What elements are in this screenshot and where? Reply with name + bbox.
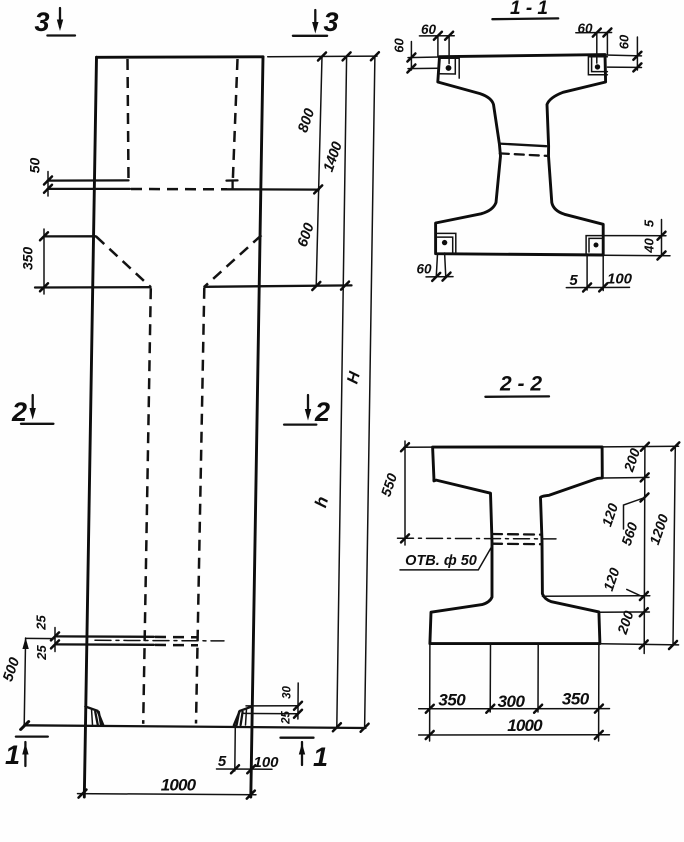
svg-text:560: 560 <box>618 520 641 547</box>
svg-text:60: 60 <box>577 21 593 36</box>
svg-text:25: 25 <box>34 645 49 661</box>
svg-text:1: 1 <box>313 742 328 772</box>
svg-text:2 - 2: 2 - 2 <box>499 373 542 396</box>
svg-text:100: 100 <box>607 271 633 288</box>
svg-text:200: 200 <box>620 446 643 474</box>
svg-text:300: 300 <box>498 692 526 711</box>
svg-text:25: 25 <box>34 615 49 631</box>
svg-text:2: 2 <box>314 397 330 427</box>
svg-text:1000: 1000 <box>507 716 543 735</box>
svg-text:3: 3 <box>34 7 49 37</box>
svg-text:H: H <box>344 370 364 386</box>
svg-text:800: 800 <box>295 107 318 135</box>
svg-text:1200: 1200 <box>646 512 671 547</box>
svg-text:60: 60 <box>392 38 407 53</box>
svg-text:2: 2 <box>11 397 27 427</box>
svg-text:3: 3 <box>323 7 338 37</box>
svg-text:5: 5 <box>218 753 227 770</box>
svg-text:60: 60 <box>416 262 432 277</box>
svg-text:1 - 1: 1 - 1 <box>510 0 548 19</box>
svg-text:ОТВ. ф 50: ОТВ. ф 50 <box>405 553 477 569</box>
svg-text:120: 120 <box>598 501 621 528</box>
svg-text:100: 100 <box>253 754 279 771</box>
svg-text:25: 25 <box>281 711 293 725</box>
svg-text:550: 550 <box>377 471 400 498</box>
svg-text:5: 5 <box>642 219 657 227</box>
svg-text:120: 120 <box>600 566 623 593</box>
svg-text:5: 5 <box>569 272 578 289</box>
svg-text:60: 60 <box>421 22 437 37</box>
svg-text:350: 350 <box>562 690 590 709</box>
svg-text:350: 350 <box>20 247 36 271</box>
svg-text:500: 500 <box>0 656 23 684</box>
svg-text:40: 40 <box>642 238 657 254</box>
svg-text:60: 60 <box>617 34 632 49</box>
svg-text:1: 1 <box>5 740 20 770</box>
svg-text:1000: 1000 <box>161 776 197 795</box>
svg-text:600: 600 <box>295 221 318 249</box>
svg-text:50: 50 <box>27 158 43 174</box>
svg-text:30: 30 <box>282 686 294 699</box>
svg-text:350: 350 <box>438 691 466 710</box>
svg-text:1400: 1400 <box>321 140 346 174</box>
svg-text:h: h <box>311 495 332 510</box>
